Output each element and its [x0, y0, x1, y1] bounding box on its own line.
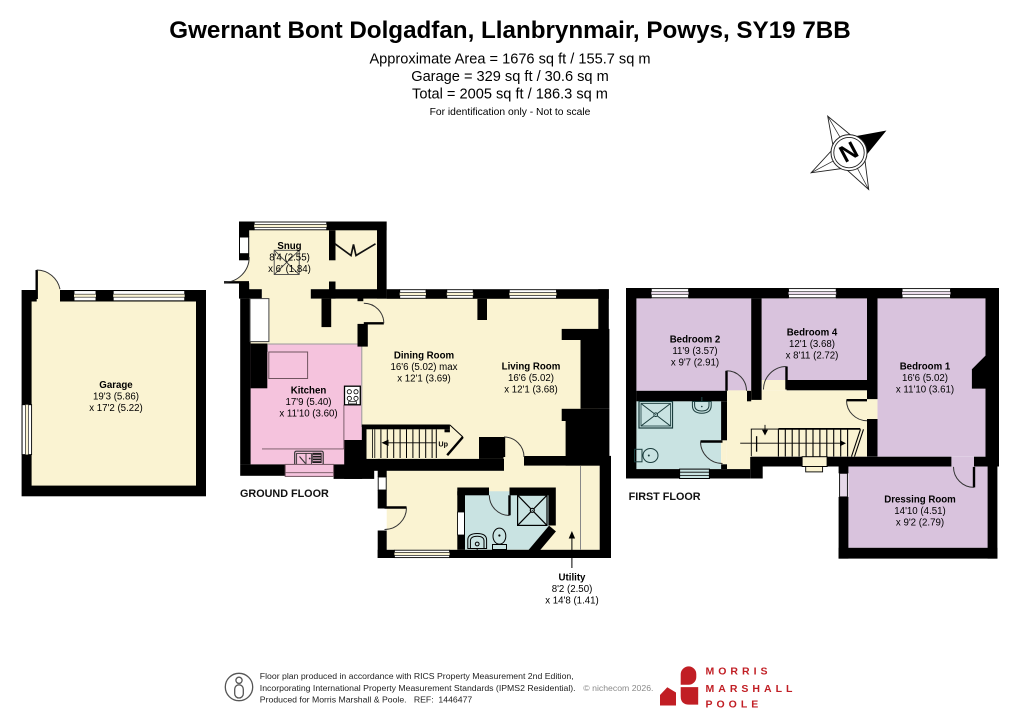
- svg-text:x 9'7 (2.91): x 9'7 (2.91): [671, 358, 719, 369]
- svg-text:x 12'1 (3.69): x 12'1 (3.69): [397, 374, 451, 385]
- svg-text:Bedroom 2: Bedroom 2: [670, 335, 721, 346]
- svg-text:Bedroom 4: Bedroom 4: [787, 328, 838, 339]
- svg-text:FIRST FLOOR: FIRST FLOOR: [629, 491, 701, 503]
- svg-text:16'6 (5.02) max: 16'6 (5.02) max: [390, 362, 457, 373]
- svg-text:GROUND FLOOR: GROUND FLOOR: [240, 488, 329, 500]
- svg-text:x 9'2 (2.79): x 9'2 (2.79): [896, 518, 944, 529]
- svg-text:Floor plan produced in accorda: Floor plan produced in accordance with R…: [260, 671, 574, 681]
- svg-text:14'10 (4.51): 14'10 (4.51): [894, 506, 945, 517]
- svg-text:For identification only - Not: For identification only - Not to scale: [430, 107, 591, 118]
- svg-text:MORRIS: MORRIS: [706, 665, 772, 677]
- svg-text:Garage: Garage: [99, 380, 133, 391]
- svg-text:x 8'11 (2.72): x 8'11 (2.72): [786, 351, 839, 362]
- svg-text:x 6' (1.84): x 6' (1.84): [268, 264, 311, 275]
- svg-text:8'4 (2.55): 8'4 (2.55): [269, 253, 310, 264]
- svg-text:Approximate Area = 1676 sq ft: Approximate Area = 1676 sq ft / 155.7 sq…: [369, 52, 650, 68]
- svg-text:MARSHALL: MARSHALL: [706, 683, 797, 695]
- svg-text:x 11'10 (3.61): x 11'10 (3.61): [896, 385, 954, 396]
- svg-text:Incorporating International Pr: Incorporating International Property Mea…: [260, 683, 576, 693]
- svg-text:Utility: Utility: [559, 573, 587, 584]
- svg-text:Total = 2005 sq ft / 186.3 sq: Total = 2005 sq ft / 186.3 sq m: [412, 87, 608, 103]
- svg-text:x 14'8 (1.41): x 14'8 (1.41): [545, 596, 599, 607]
- svg-text:Dining Room: Dining Room: [394, 351, 455, 362]
- svg-text:x 17'2 (5.22): x 17'2 (5.22): [89, 403, 143, 414]
- svg-text:Produced for Morris Marshall &: Produced for Morris Marshall & Poole. RE…: [260, 695, 473, 705]
- svg-text:Living Room: Living Room: [502, 362, 561, 373]
- svg-text:x 11'10 (3.60): x 11'10 (3.60): [279, 409, 337, 420]
- svg-text:Garage = 329 sq ft / 30.6 sq m: Garage = 329 sq ft / 30.6 sq m: [411, 69, 609, 85]
- svg-text:Kitchen: Kitchen: [291, 386, 327, 397]
- svg-text:16'6 (5.02): 16'6 (5.02): [902, 373, 948, 384]
- svg-text:© nichecom 2026.: © nichecom 2026.: [583, 683, 653, 693]
- svg-text:Gwernant Bont Dolgadfan, Llanb: Gwernant Bont Dolgadfan, Llanbrynmair, P…: [169, 17, 850, 44]
- svg-text:x 12'1 (3.68): x 12'1 (3.68): [504, 385, 558, 396]
- svg-text:12'1 (3.68): 12'1 (3.68): [789, 339, 835, 350]
- svg-text:Bedroom 1: Bedroom 1: [900, 362, 951, 373]
- svg-text:8'2 (2.50): 8'2 (2.50): [552, 584, 593, 595]
- svg-text:Dressing Room: Dressing Room: [884, 495, 956, 506]
- svg-text:Snug: Snug: [277, 241, 301, 252]
- svg-text:Up: Up: [438, 439, 448, 448]
- svg-text:17'9 (5.40): 17'9 (5.40): [285, 397, 331, 408]
- svg-text:11'9 (3.57): 11'9 (3.57): [672, 346, 717, 357]
- svg-text:POOLE: POOLE: [706, 698, 763, 710]
- svg-text:19'3 (5.86): 19'3 (5.86): [93, 392, 139, 403]
- svg-text:16'6 (5.02): 16'6 (5.02): [508, 373, 554, 384]
